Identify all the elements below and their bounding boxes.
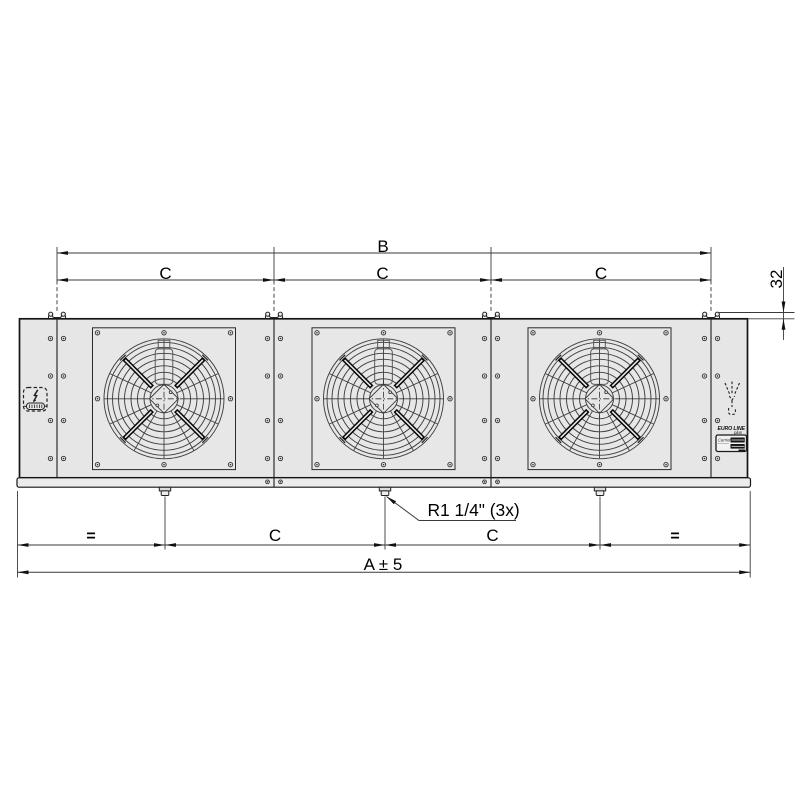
svg-text:=: = xyxy=(670,528,679,545)
svg-text:C: C xyxy=(595,264,607,283)
svg-text:plus: plus xyxy=(733,430,743,435)
svg-text:C: C xyxy=(486,526,498,545)
svg-text:C: C xyxy=(376,264,388,283)
svg-text:A ± 5: A ± 5 xyxy=(364,555,403,574)
svg-text:=: = xyxy=(86,528,95,545)
svg-text:Carrier: Carrier xyxy=(718,438,731,443)
svg-text:B: B xyxy=(377,237,388,256)
svg-text:C: C xyxy=(269,526,281,545)
svg-text:32: 32 xyxy=(767,270,786,289)
svg-text:R1 1/4" (3x): R1 1/4" (3x) xyxy=(428,500,520,520)
svg-text:C: C xyxy=(159,264,171,283)
